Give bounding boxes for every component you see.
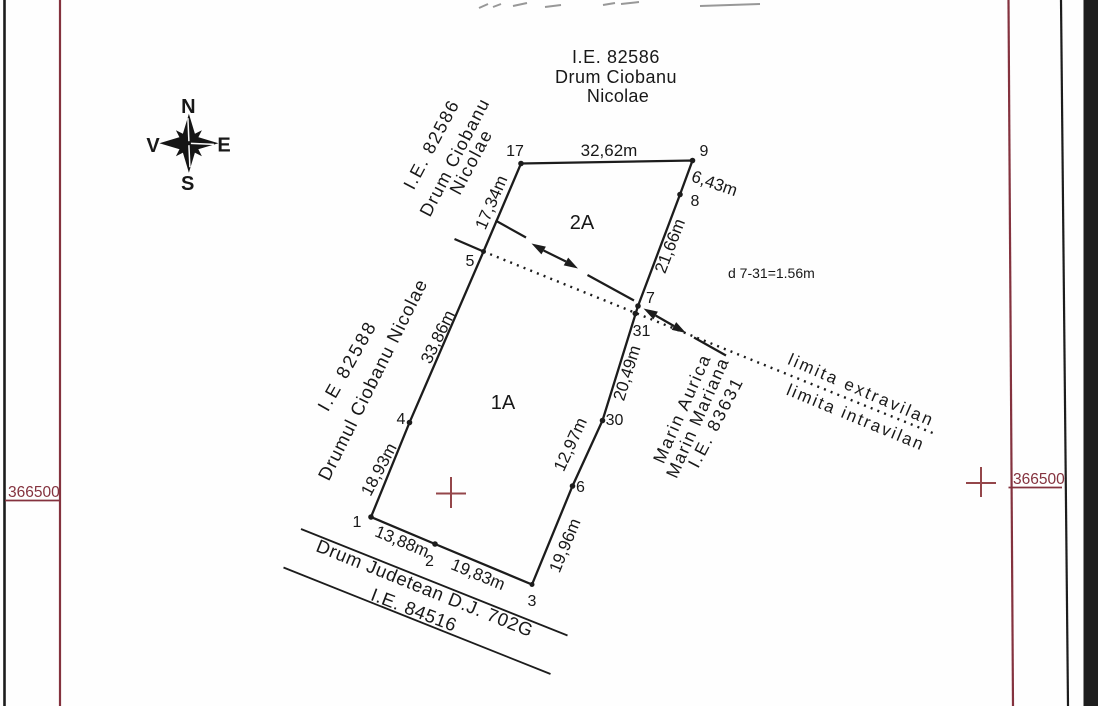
svg-text:Drum Ciobanu: Drum Ciobanu	[555, 67, 677, 87]
svg-text:17: 17	[506, 143, 524, 160]
svg-text:1: 1	[353, 514, 362, 531]
svg-text:3: 3	[528, 593, 537, 610]
svg-text:d 7-31=1.56m: d 7-31=1.56m	[728, 265, 815, 281]
svg-text:30: 30	[606, 412, 624, 429]
svg-text:1A: 1A	[491, 392, 516, 414]
svg-text:V: V	[146, 135, 160, 157]
svg-text:I.E. 82586: I.E. 82586	[572, 47, 660, 67]
svg-text:6: 6	[576, 479, 585, 496]
svg-text:31: 31	[633, 323, 651, 340]
svg-text:8: 8	[691, 193, 700, 210]
svg-text:N: N	[181, 96, 195, 118]
svg-text:2A: 2A	[570, 212, 595, 234]
svg-text:S: S	[181, 173, 194, 195]
svg-text:4: 4	[397, 411, 406, 428]
svg-text:E: E	[217, 135, 230, 157]
svg-text:Nicolae: Nicolae	[587, 86, 649, 106]
svg-text:7: 7	[646, 290, 655, 307]
svg-text:5: 5	[466, 253, 475, 270]
svg-text:32,62m: 32,62m	[581, 141, 638, 160]
svg-text:366500: 366500	[8, 484, 60, 501]
svg-text:366500: 366500	[1013, 471, 1065, 488]
svg-text:9: 9	[700, 143, 709, 160]
